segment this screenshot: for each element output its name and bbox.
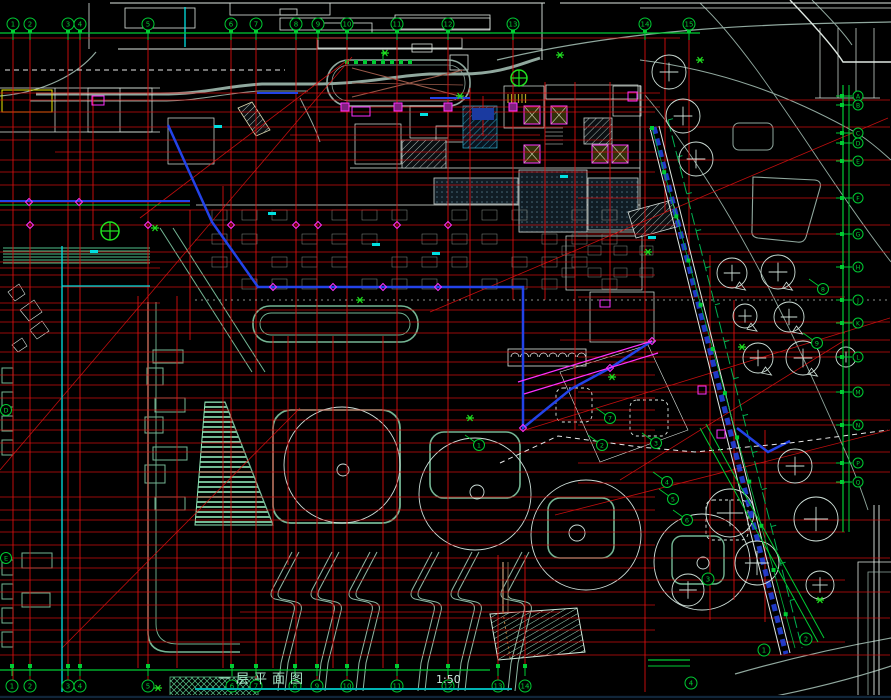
axis-bubble-label: 7 — [608, 414, 612, 422]
axis-bubble-label: 1 — [10, 683, 14, 691]
axis-bubble-label: 2 — [28, 21, 32, 29]
axis-bubble-label: 3 — [706, 576, 710, 584]
axis-bubble-label: N — [856, 422, 861, 429]
axis-bubble-label: 12 — [444, 21, 453, 29]
axis-bubble-label: 15 — [685, 21, 694, 29]
axis-bubble-label: F — [856, 195, 860, 202]
axis-bubble-label: 8 — [294, 21, 298, 29]
axis-bubble-label: H — [856, 264, 861, 271]
axis-bubble-label: 11 — [393, 21, 402, 29]
axis-bubble-label: E — [856, 158, 860, 165]
axis-bubble-label: 5 — [146, 683, 150, 691]
axis-bubble-label: 8 — [821, 285, 825, 293]
axis-bubble-label: B — [856, 102, 860, 109]
axis-bubble-label: 7 — [254, 21, 258, 29]
axis-bubble-label: D — [3, 406, 8, 414]
cad-drawing-viewport: 1234567891011121314151234567891011121314… — [0, 0, 891, 700]
axis-bubble-label: 4 — [689, 680, 694, 688]
axis-bubble-label: J — [856, 297, 859, 304]
axis-bubble-label: 13 — [509, 21, 518, 29]
axis-bubble-label: 1 — [762, 647, 766, 655]
axis-bubble-label: D — [856, 140, 861, 147]
axis-bubble-label: C — [856, 130, 860, 137]
axis-bubble-label: 2 — [600, 441, 604, 449]
axis-bubble-label: 1 — [11, 21, 15, 29]
axis-bubble-label: 2 — [804, 636, 808, 644]
axis-bubble-label: 4 — [78, 21, 83, 29]
axis-bubble-label: 10 — [343, 21, 352, 29]
axis-bubble-label: 4 — [78, 683, 83, 691]
axis-bubble-label: 3 — [66, 683, 70, 691]
axis-bubble-label: 14 — [641, 21, 650, 29]
axis-bubble-label: 6 — [229, 21, 234, 29]
drawing-title: 一层平面图 — [218, 672, 308, 687]
axis-bubble-label: P — [856, 460, 860, 467]
axis-bubble-label: 14 — [521, 683, 530, 691]
axis-bubble-label: 9 — [316, 21, 320, 29]
axis-bubble-label: 4 — [665, 478, 669, 486]
axis-bubble-label: 6 — [685, 516, 689, 524]
axis-bubble-label: 9 — [815, 339, 819, 347]
axis-bubble-label: Q — [856, 479, 861, 486]
axis-bubble-label: 3 — [66, 21, 70, 29]
drawing-scale: 1:50 — [436, 673, 461, 686]
axis-bubble-label: 1 — [477, 441, 481, 449]
floor-plan-canvas: 1234567891011121314151234567891011121314… — [0, 0, 891, 700]
axis-bubble-label: 3 — [654, 439, 658, 447]
axis-bubble-label: 2 — [28, 683, 32, 691]
axis-bubble-label: M — [855, 389, 860, 396]
axis-bubble-label: G — [856, 231, 861, 238]
axis-bubble-label: E — [4, 554, 8, 562]
axis-bubble-label: 5 — [146, 21, 150, 29]
axis-bubble-label: 5 — [671, 495, 675, 503]
